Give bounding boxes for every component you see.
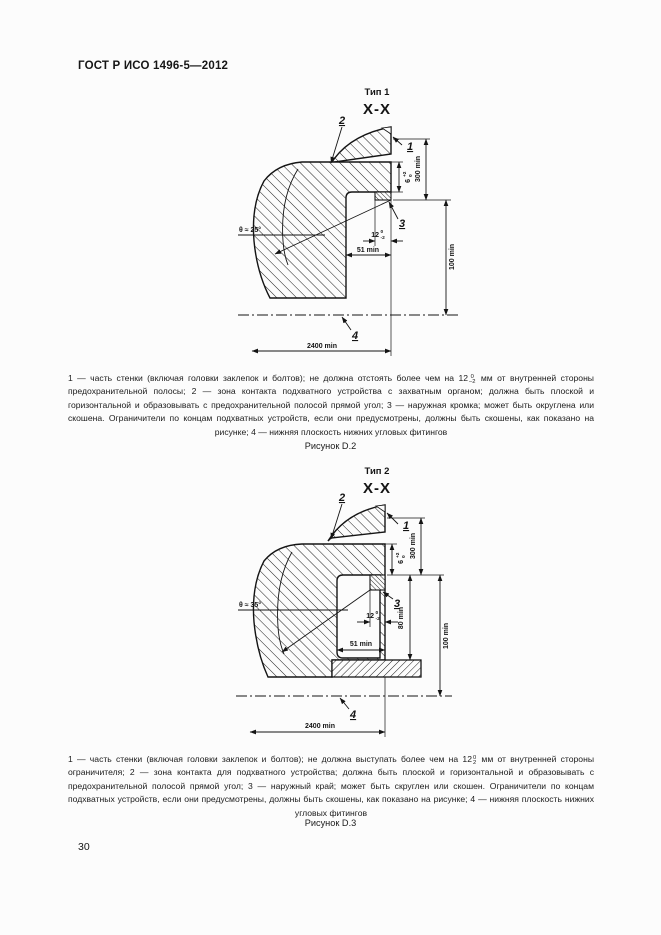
fig1-part-label-1: 1 xyxy=(407,141,413,153)
fig1-part-label-4: 4 xyxy=(351,330,358,342)
fig2-outer-edge-zone xyxy=(370,575,385,590)
fig1-dim-51: 51 min xyxy=(357,247,379,254)
fig2-bottom-rail xyxy=(332,660,421,677)
figure-d2-caption: 1 — часть стенки (включая головки заклеп… xyxy=(68,372,594,439)
document-header: ГОСТ Р ИСО 1496-5—2012 xyxy=(78,60,228,72)
fig2-dim-100: 100 min xyxy=(443,623,450,649)
figure-d3-drawing: Тип 2 X-X θ ≈ 35° xyxy=(230,462,475,750)
fig2-angle-label: θ ≈ 35° xyxy=(239,601,261,609)
fig1-caption-tolerance: 0–2 xyxy=(469,375,475,385)
fig1-angle-label: θ ≈ 25° xyxy=(239,226,261,234)
fig2-section-label: X-X xyxy=(363,480,391,497)
svg-text:+2: +2 xyxy=(395,552,401,558)
svg-text:0: 0 xyxy=(381,229,384,235)
fig1-dim-100: 100 min xyxy=(449,244,456,270)
fig1-dim-6: 6 +2 0 xyxy=(402,171,414,183)
figure-d2-drawing: Тип 1 X-X θ ≈ 25° xyxy=(230,83,465,363)
fig1-type-label: Тип 1 xyxy=(365,87,391,98)
fig2-wall-section xyxy=(253,505,421,677)
fig2-dim-51: 51 min xyxy=(350,641,372,648)
fig1-wall-section xyxy=(253,127,391,298)
fig2-dim-300: 300 min xyxy=(410,533,417,559)
svg-text:6: 6 xyxy=(398,560,405,564)
fig2-dim-12: 12 0 -2 xyxy=(366,610,380,622)
fig2-part-label-1: 1 xyxy=(403,520,409,532)
fig1-dim-300: 300 min xyxy=(415,156,422,182)
fig2-part-label-4: 4 xyxy=(349,709,356,721)
svg-text:0: 0 xyxy=(408,174,414,177)
svg-text:-2: -2 xyxy=(381,235,386,241)
fig2-caption-tolerance: 02 xyxy=(473,756,476,766)
svg-text:0: 0 xyxy=(376,610,379,616)
fig1-caption-text-1: 1 — часть стенки (включая головки заклеп… xyxy=(68,373,468,383)
fig2-part-label-3: 3 xyxy=(394,598,400,610)
fig2-part-label-2: 2 xyxy=(338,492,345,504)
fig1-dim-12: 12 0 -2 xyxy=(371,229,385,241)
fig2-dim-2400: 2400 min xyxy=(305,723,335,730)
figure-d3: Тип 2 X-X θ ≈ 35° xyxy=(230,462,475,755)
fig2-caption-text-1: 1 — часть стенки (включая головки заклеп… xyxy=(68,754,472,764)
svg-text:6: 6 xyxy=(405,179,412,183)
fig1-section-label: X-X xyxy=(363,101,391,118)
figure-d3-caption: 1 — часть стенки (включая головки заклеп… xyxy=(68,753,594,820)
svg-text:-2: -2 xyxy=(376,616,381,622)
svg-text:12: 12 xyxy=(371,232,379,239)
figure-d2-title: Рисунок D.2 xyxy=(0,441,661,451)
document-page: ГОСТ Р ИСО 1496-5—2012 Тип 1 X-X xyxy=(0,0,661,935)
fig1-outer-edge-zone xyxy=(375,192,391,200)
svg-text:+2: +2 xyxy=(402,171,408,177)
fig1-dim-2400: 2400 min xyxy=(307,343,337,350)
fig1-part-label-2: 2 xyxy=(338,115,345,127)
figure-d2: Тип 1 X-X θ ≈ 25° xyxy=(230,83,465,368)
page-number: 30 xyxy=(78,841,90,853)
svg-text:12: 12 xyxy=(366,613,374,620)
fig2-dim-6: 6 +2 0 xyxy=(395,552,407,564)
fig2-dim-80: 80 min xyxy=(398,607,405,629)
fig1-part-label-3: 3 xyxy=(399,218,405,230)
fig2-type-label: Тип 2 xyxy=(365,466,390,477)
svg-text:0: 0 xyxy=(401,555,407,558)
figure-d3-title: Рисунок D.3 xyxy=(0,818,661,828)
